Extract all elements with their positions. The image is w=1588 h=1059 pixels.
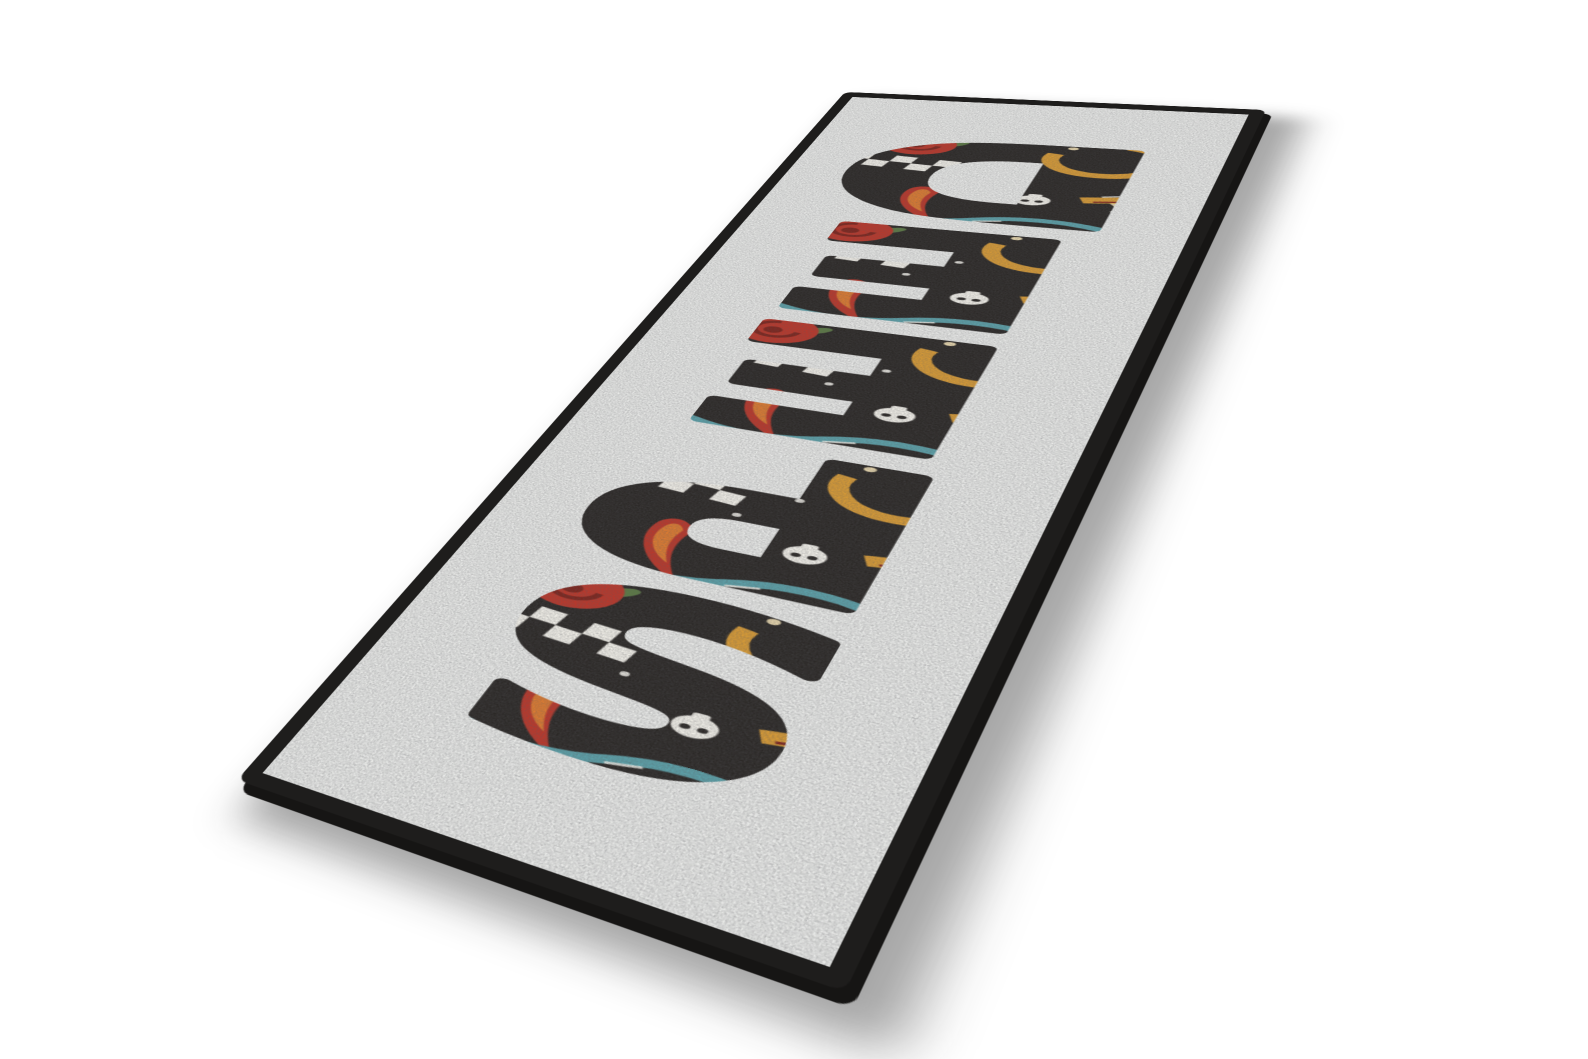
mat-text: SPEED (0, 21, 1, 22)
mockup-scene: SPEED (0, 0, 1588, 1059)
mat-perspective-wrapper: SPEED (237, 92, 1266, 992)
